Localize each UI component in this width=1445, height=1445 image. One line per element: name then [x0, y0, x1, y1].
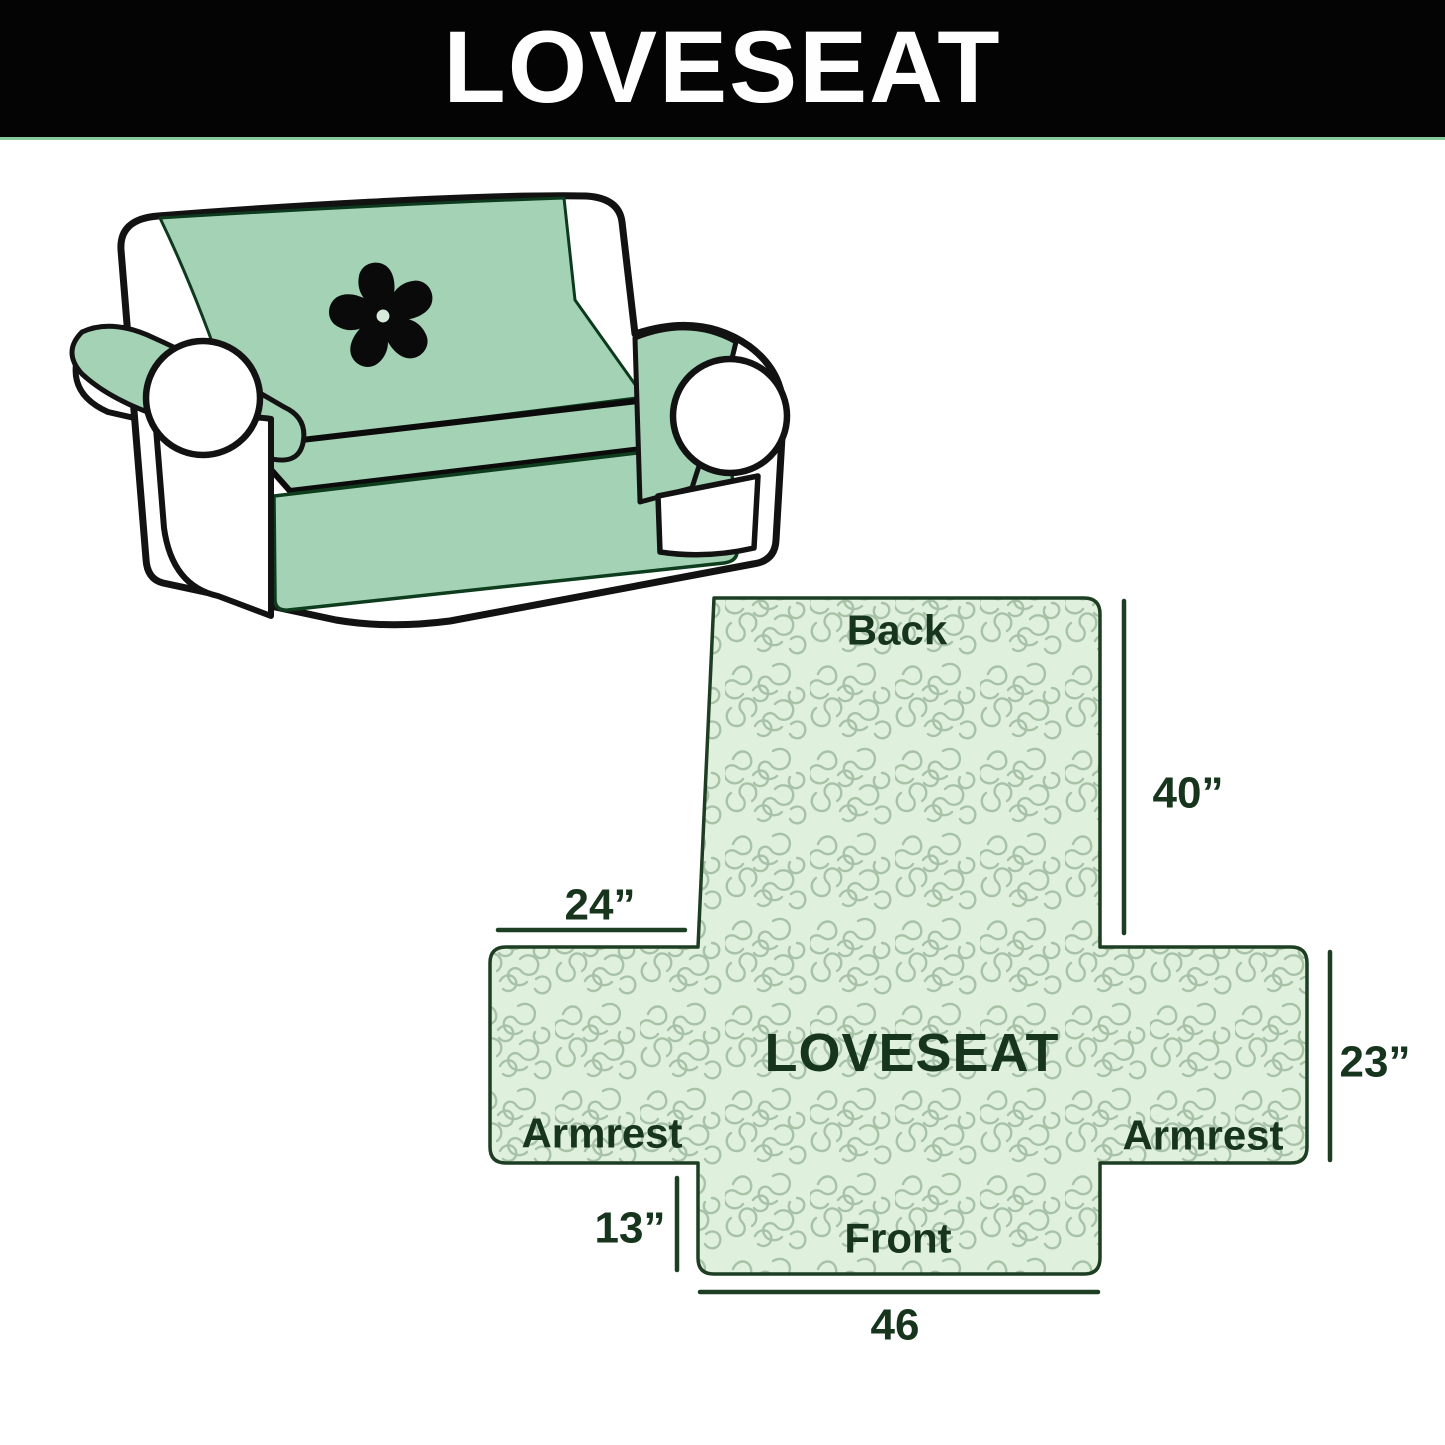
dim-back-height: 40” — [1153, 769, 1224, 818]
dim-front-drop-height: 13” — [595, 1204, 666, 1253]
title-banner: LOVESEAT — [0, 0, 1445, 140]
size-diagram: Back LOVESEAT Armrest Armrest Front 40” … — [470, 575, 1430, 1355]
diagram-center-label: LOVESEAT — [764, 1023, 1059, 1083]
sofa-left-arm-roll — [146, 341, 260, 455]
dim-armrest-side-height: 23” — [1340, 1038, 1411, 1087]
cover-outline-shape — [490, 598, 1307, 1274]
banner-title: LOVESEAT — [443, 16, 1001, 118]
sofa-right-arm-roll — [673, 359, 787, 473]
size-diagram-svg: Back LOVESEAT Armrest Armrest Front 40” … — [470, 575, 1430, 1355]
diagram-back-label: Back — [847, 607, 948, 654]
dim-front-width: 46 — [871, 1301, 920, 1350]
dim-armrest-top-width: 24” — [565, 881, 636, 930]
diagram-armrest-right-label: Armrest — [1122, 1112, 1283, 1159]
diagram-front-label: Front — [844, 1215, 951, 1262]
diagram-armrest-left-label: Armrest — [521, 1110, 682, 1157]
